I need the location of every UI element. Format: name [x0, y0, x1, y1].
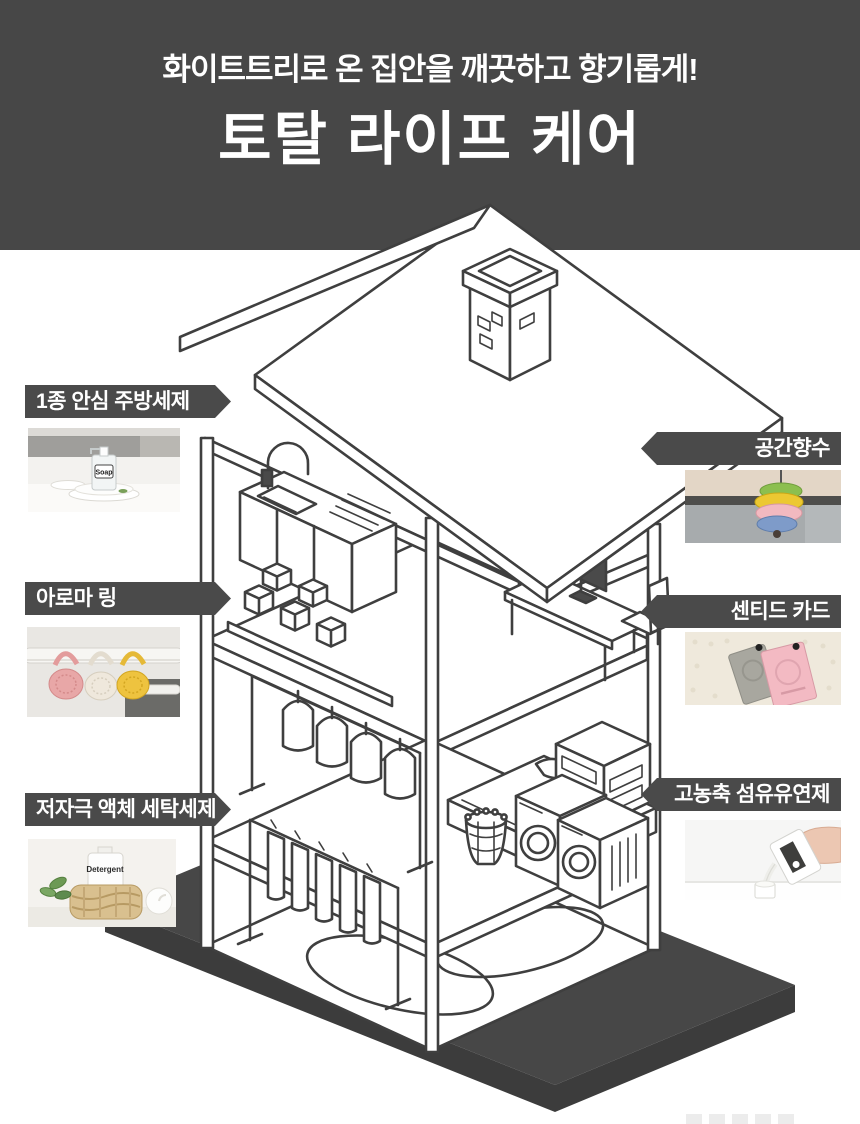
soap-label: Soap: [95, 470, 112, 477]
house-cutaway-illustration: [0, 0, 860, 1124]
callout-fabric-softener: 고농축 섬유유연제: [641, 778, 841, 811]
cup: [755, 881, 775, 898]
detergent-label: Detergent: [86, 865, 124, 874]
callout-label: 센티드 카드: [731, 600, 830, 623]
callout-label: 아로마 링: [36, 587, 117, 610]
fabric-softener-photo: [685, 820, 841, 900]
photo-laundry-detergent: Detergent: [28, 839, 176, 927]
photo-kitchen-soap: Soap: [28, 428, 180, 512]
callout-label: 저자극 액체 세탁세제: [36, 798, 216, 821]
laundry-basket: [465, 808, 506, 864]
callout-aroma-ring: 아로마 링: [25, 582, 231, 615]
wicker-basket: [70, 885, 142, 919]
photo-air-freshener: [685, 470, 841, 543]
callout-label: 고농축 섬유유연제: [674, 783, 830, 806]
callout-label: 공간향수: [755, 437, 830, 460]
chimney: [463, 249, 557, 380]
kitchen-soap-photo: Soap: [28, 428, 180, 512]
photo-fabric-softener: [685, 820, 841, 900]
callout-kitchen-detergent: 1종 안심 주방세제: [25, 385, 231, 418]
aroma-rings-photo: [27, 627, 180, 717]
photo-aroma-rings: [27, 627, 180, 717]
photo-scented-cards: [685, 632, 841, 705]
cropped-next-section-text: [686, 1114, 794, 1124]
scented-cards-photo: [685, 632, 841, 705]
promo-page: 화이트트리로 온 집안을 깨끗하고 향기롭게! 토탈 라이프 케어: [0, 0, 860, 1124]
callout-laundry-detergent: 저자극 액체 세탁세제: [25, 793, 231, 826]
callout-space-perfume: 공간향수: [641, 432, 841, 465]
laundry-detergent-photo: Detergent: [28, 839, 176, 927]
callout-scented-card: 센티드 카드: [641, 595, 841, 628]
air-freshener-photo: [685, 470, 841, 543]
callout-label: 1종 안심 주방세제: [36, 390, 190, 413]
